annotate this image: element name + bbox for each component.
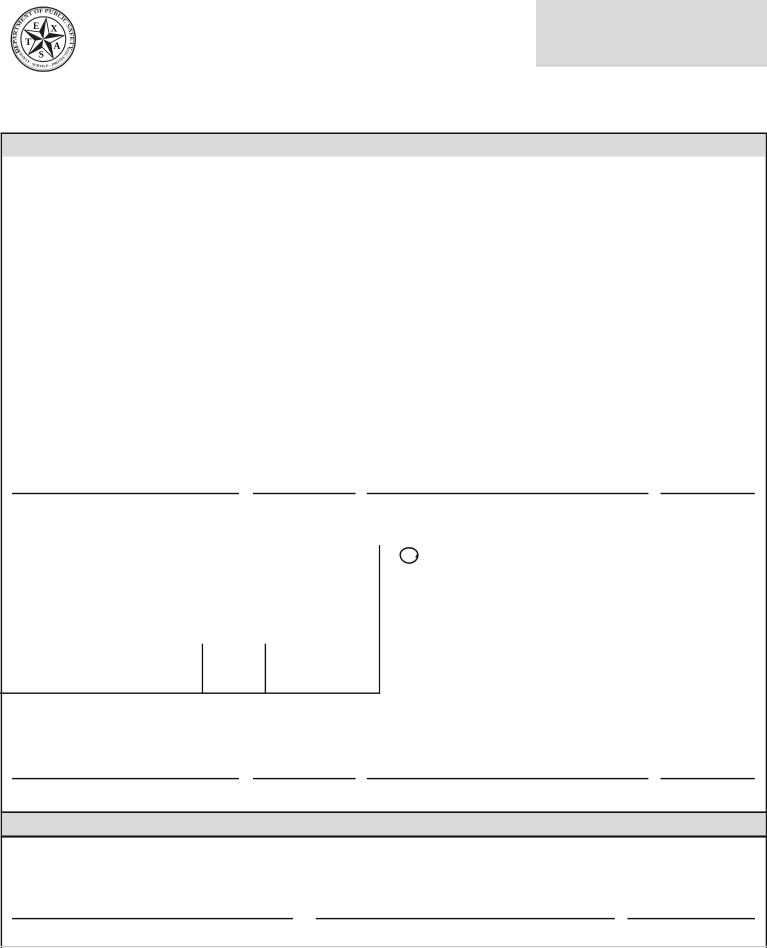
svg-text:S: S bbox=[39, 51, 44, 61]
svg-text:E: E bbox=[33, 22, 39, 32]
svg-text:A: A bbox=[54, 42, 61, 52]
svg-text:X: X bbox=[50, 25, 57, 35]
svg-text:T: T bbox=[25, 38, 32, 48]
